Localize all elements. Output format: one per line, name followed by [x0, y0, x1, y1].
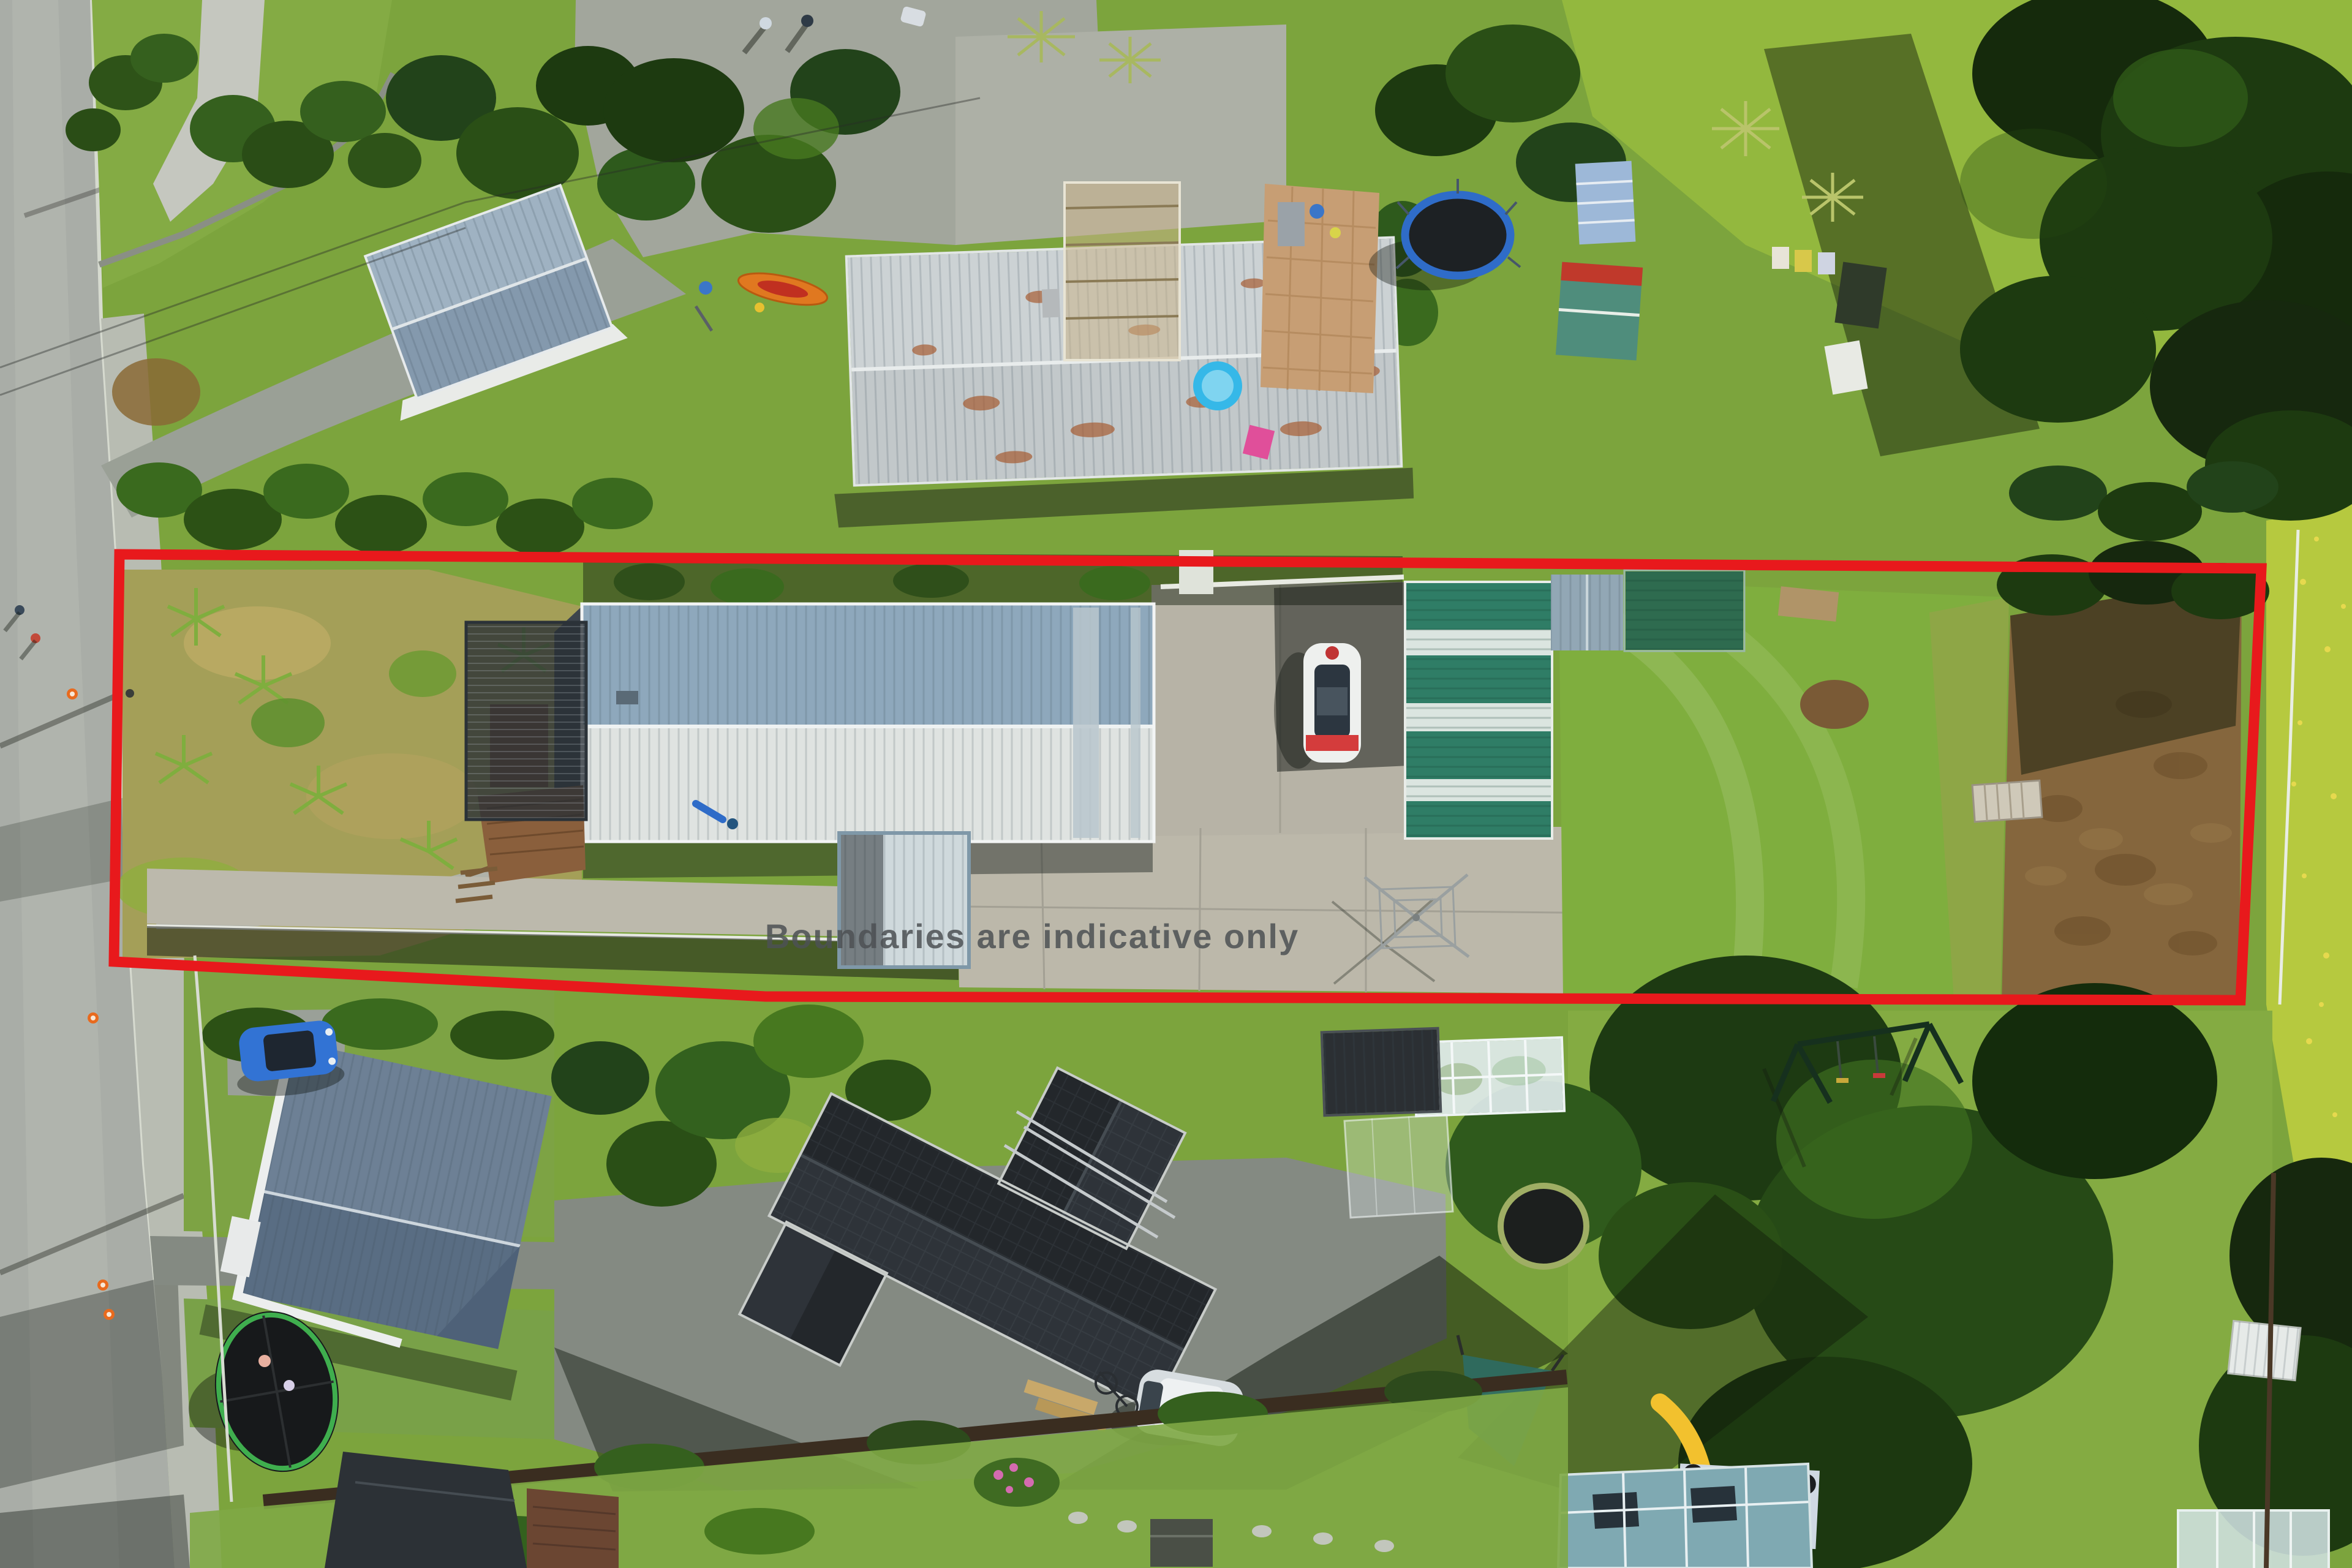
blue-cart: [699, 281, 712, 295]
aerial-photo: Boundaries are indicative only: [0, 0, 2352, 1568]
raised-bed: [1834, 262, 1887, 328]
boundary-disclaimer-text: Boundaries are indicative only: [765, 917, 1299, 956]
small-garden-shed: [1150, 1519, 1213, 1567]
white-car: [1274, 643, 1361, 769]
roof-vent: [616, 691, 638, 704]
firewood-stack: [1778, 586, 1839, 622]
meadow-right: [2266, 502, 2352, 1175]
child-on-trampoline: [258, 1355, 271, 1367]
red-brown-shrub: [112, 358, 200, 426]
car-badge: [1325, 646, 1339, 660]
green-striped-garage: [1405, 582, 1552, 839]
child-on-trampoline: [284, 1380, 295, 1391]
clear-pergola: [1065, 183, 1180, 360]
green-flat-shed: [1624, 570, 1744, 651]
dark-shed: [1322, 1028, 1441, 1116]
skylight-strip: [1131, 608, 1140, 838]
power-pole: [126, 689, 134, 698]
teal-roof-shed: [1558, 1464, 1812, 1568]
car-red-stripe: [1306, 735, 1359, 751]
inground-trampoline: [1498, 1183, 1589, 1269]
gray-garden-shed: [1551, 575, 1623, 650]
white-corrugated-panel: [2228, 1321, 2301, 1381]
person: [759, 17, 772, 29]
aerial-photo-canvas: Boundaries are indicative only: [0, 0, 2352, 1568]
person: [801, 15, 813, 27]
bottom-right-greenhouse: [2178, 1510, 2329, 1568]
wooden-platform: [1972, 780, 2042, 822]
stump: [1800, 680, 1869, 729]
skylight-strip: [1073, 608, 1099, 838]
patio-table: [1278, 202, 1305, 246]
chimney: [1042, 289, 1060, 318]
netting-cage: [1344, 1115, 1453, 1218]
main-house-roof: [554, 604, 1154, 855]
